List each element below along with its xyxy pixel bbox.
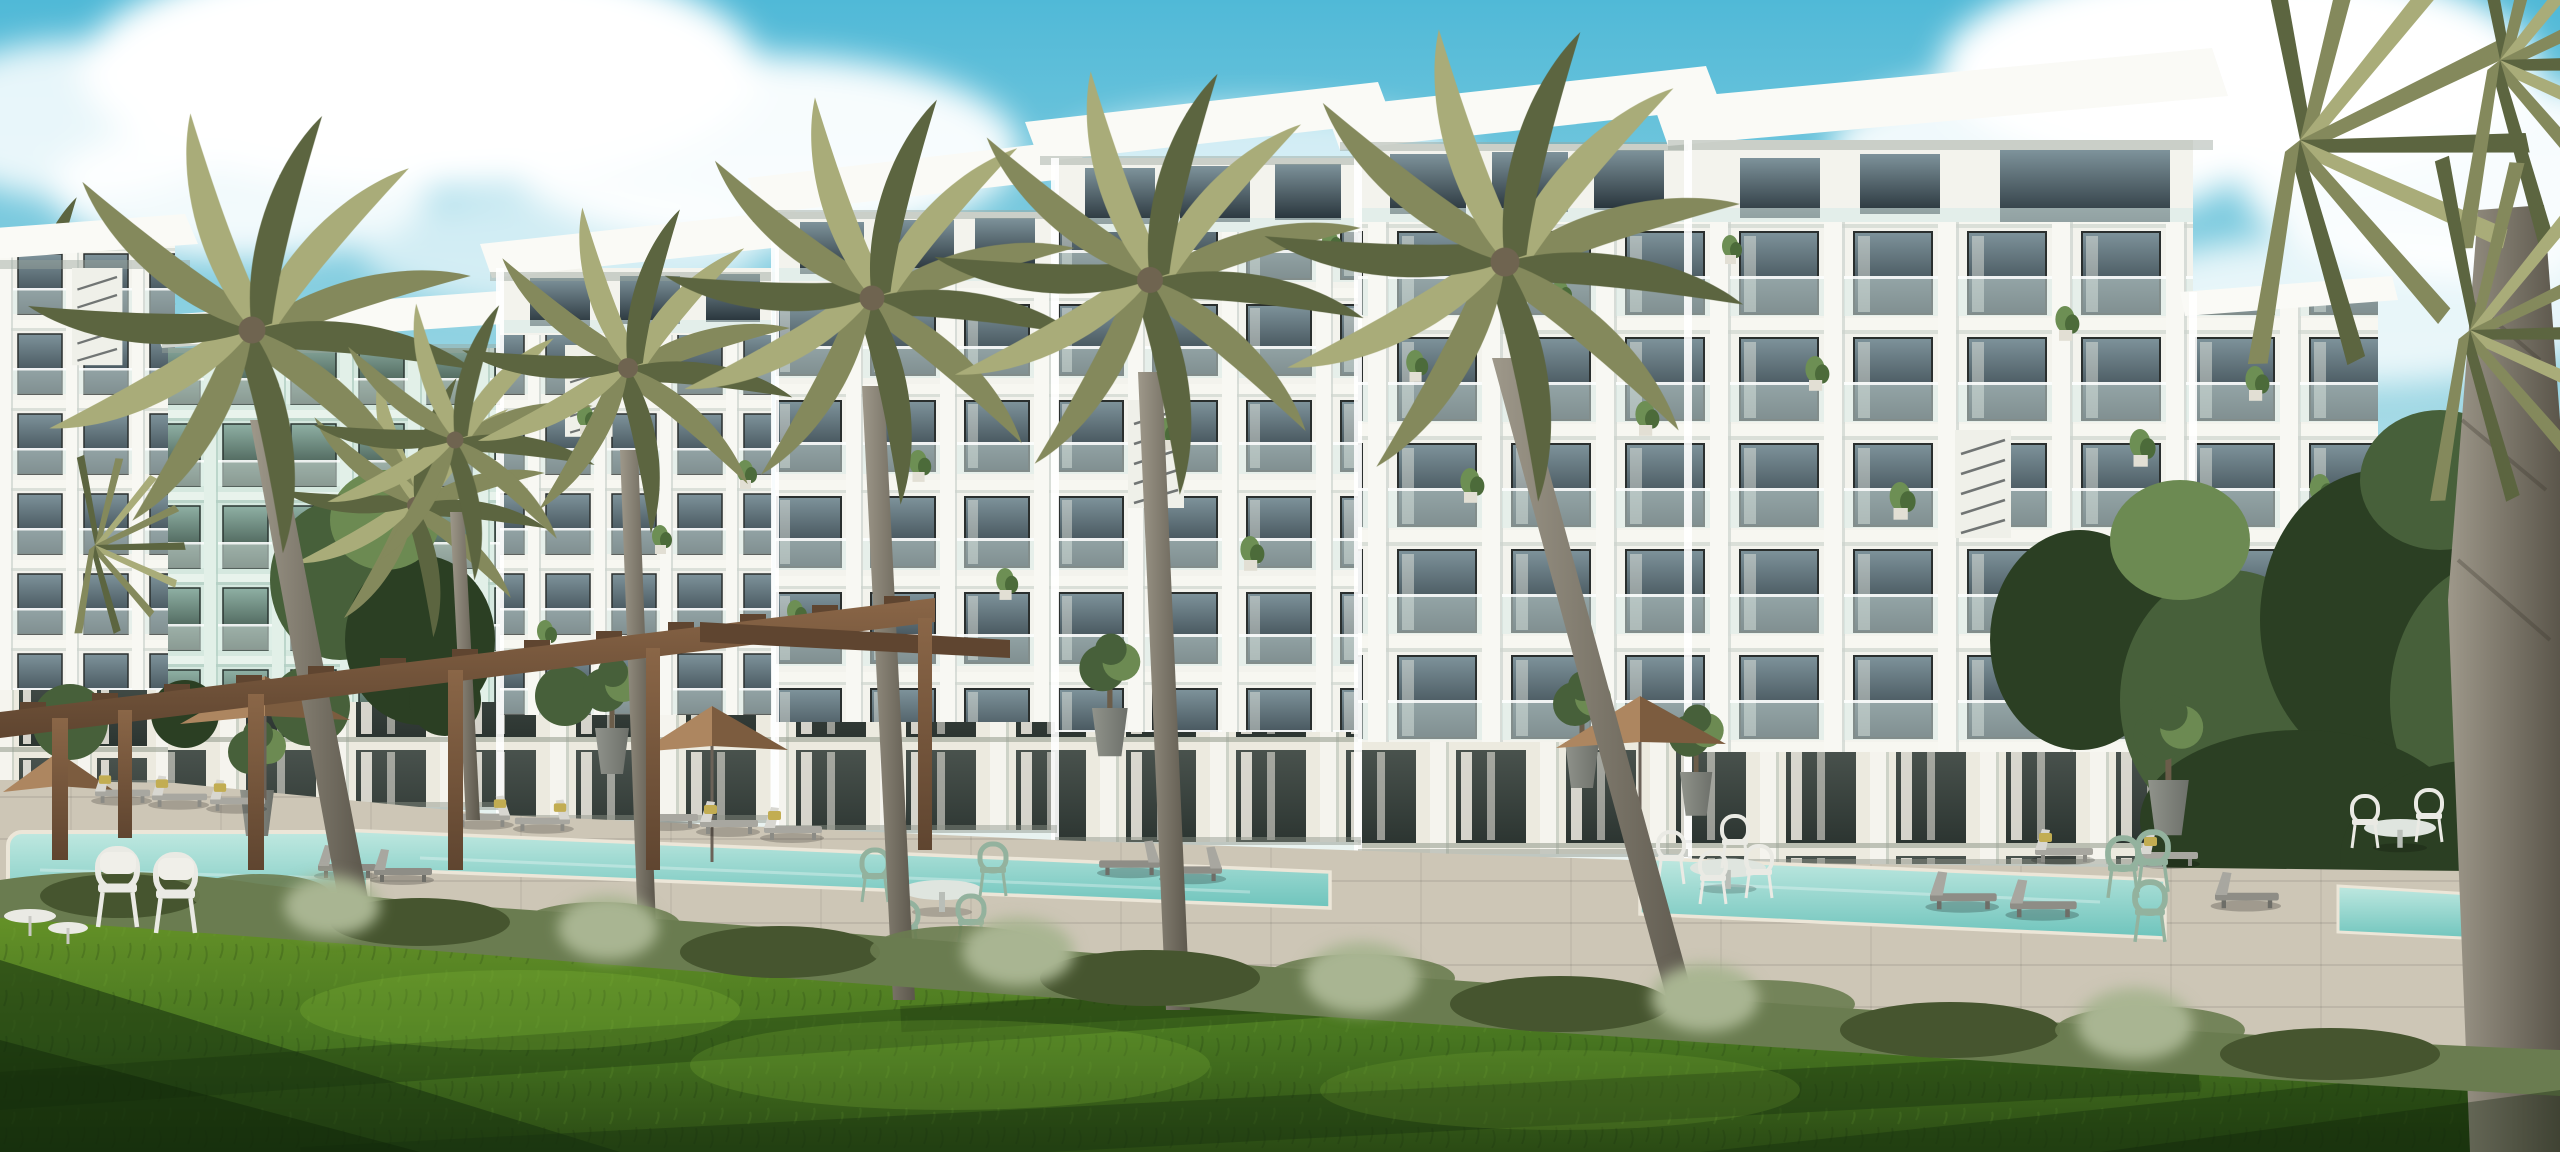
staircase bbox=[1955, 430, 2011, 538]
resort-rendering bbox=[0, 0, 2560, 1152]
rendering-canvas bbox=[0, 0, 2560, 1152]
